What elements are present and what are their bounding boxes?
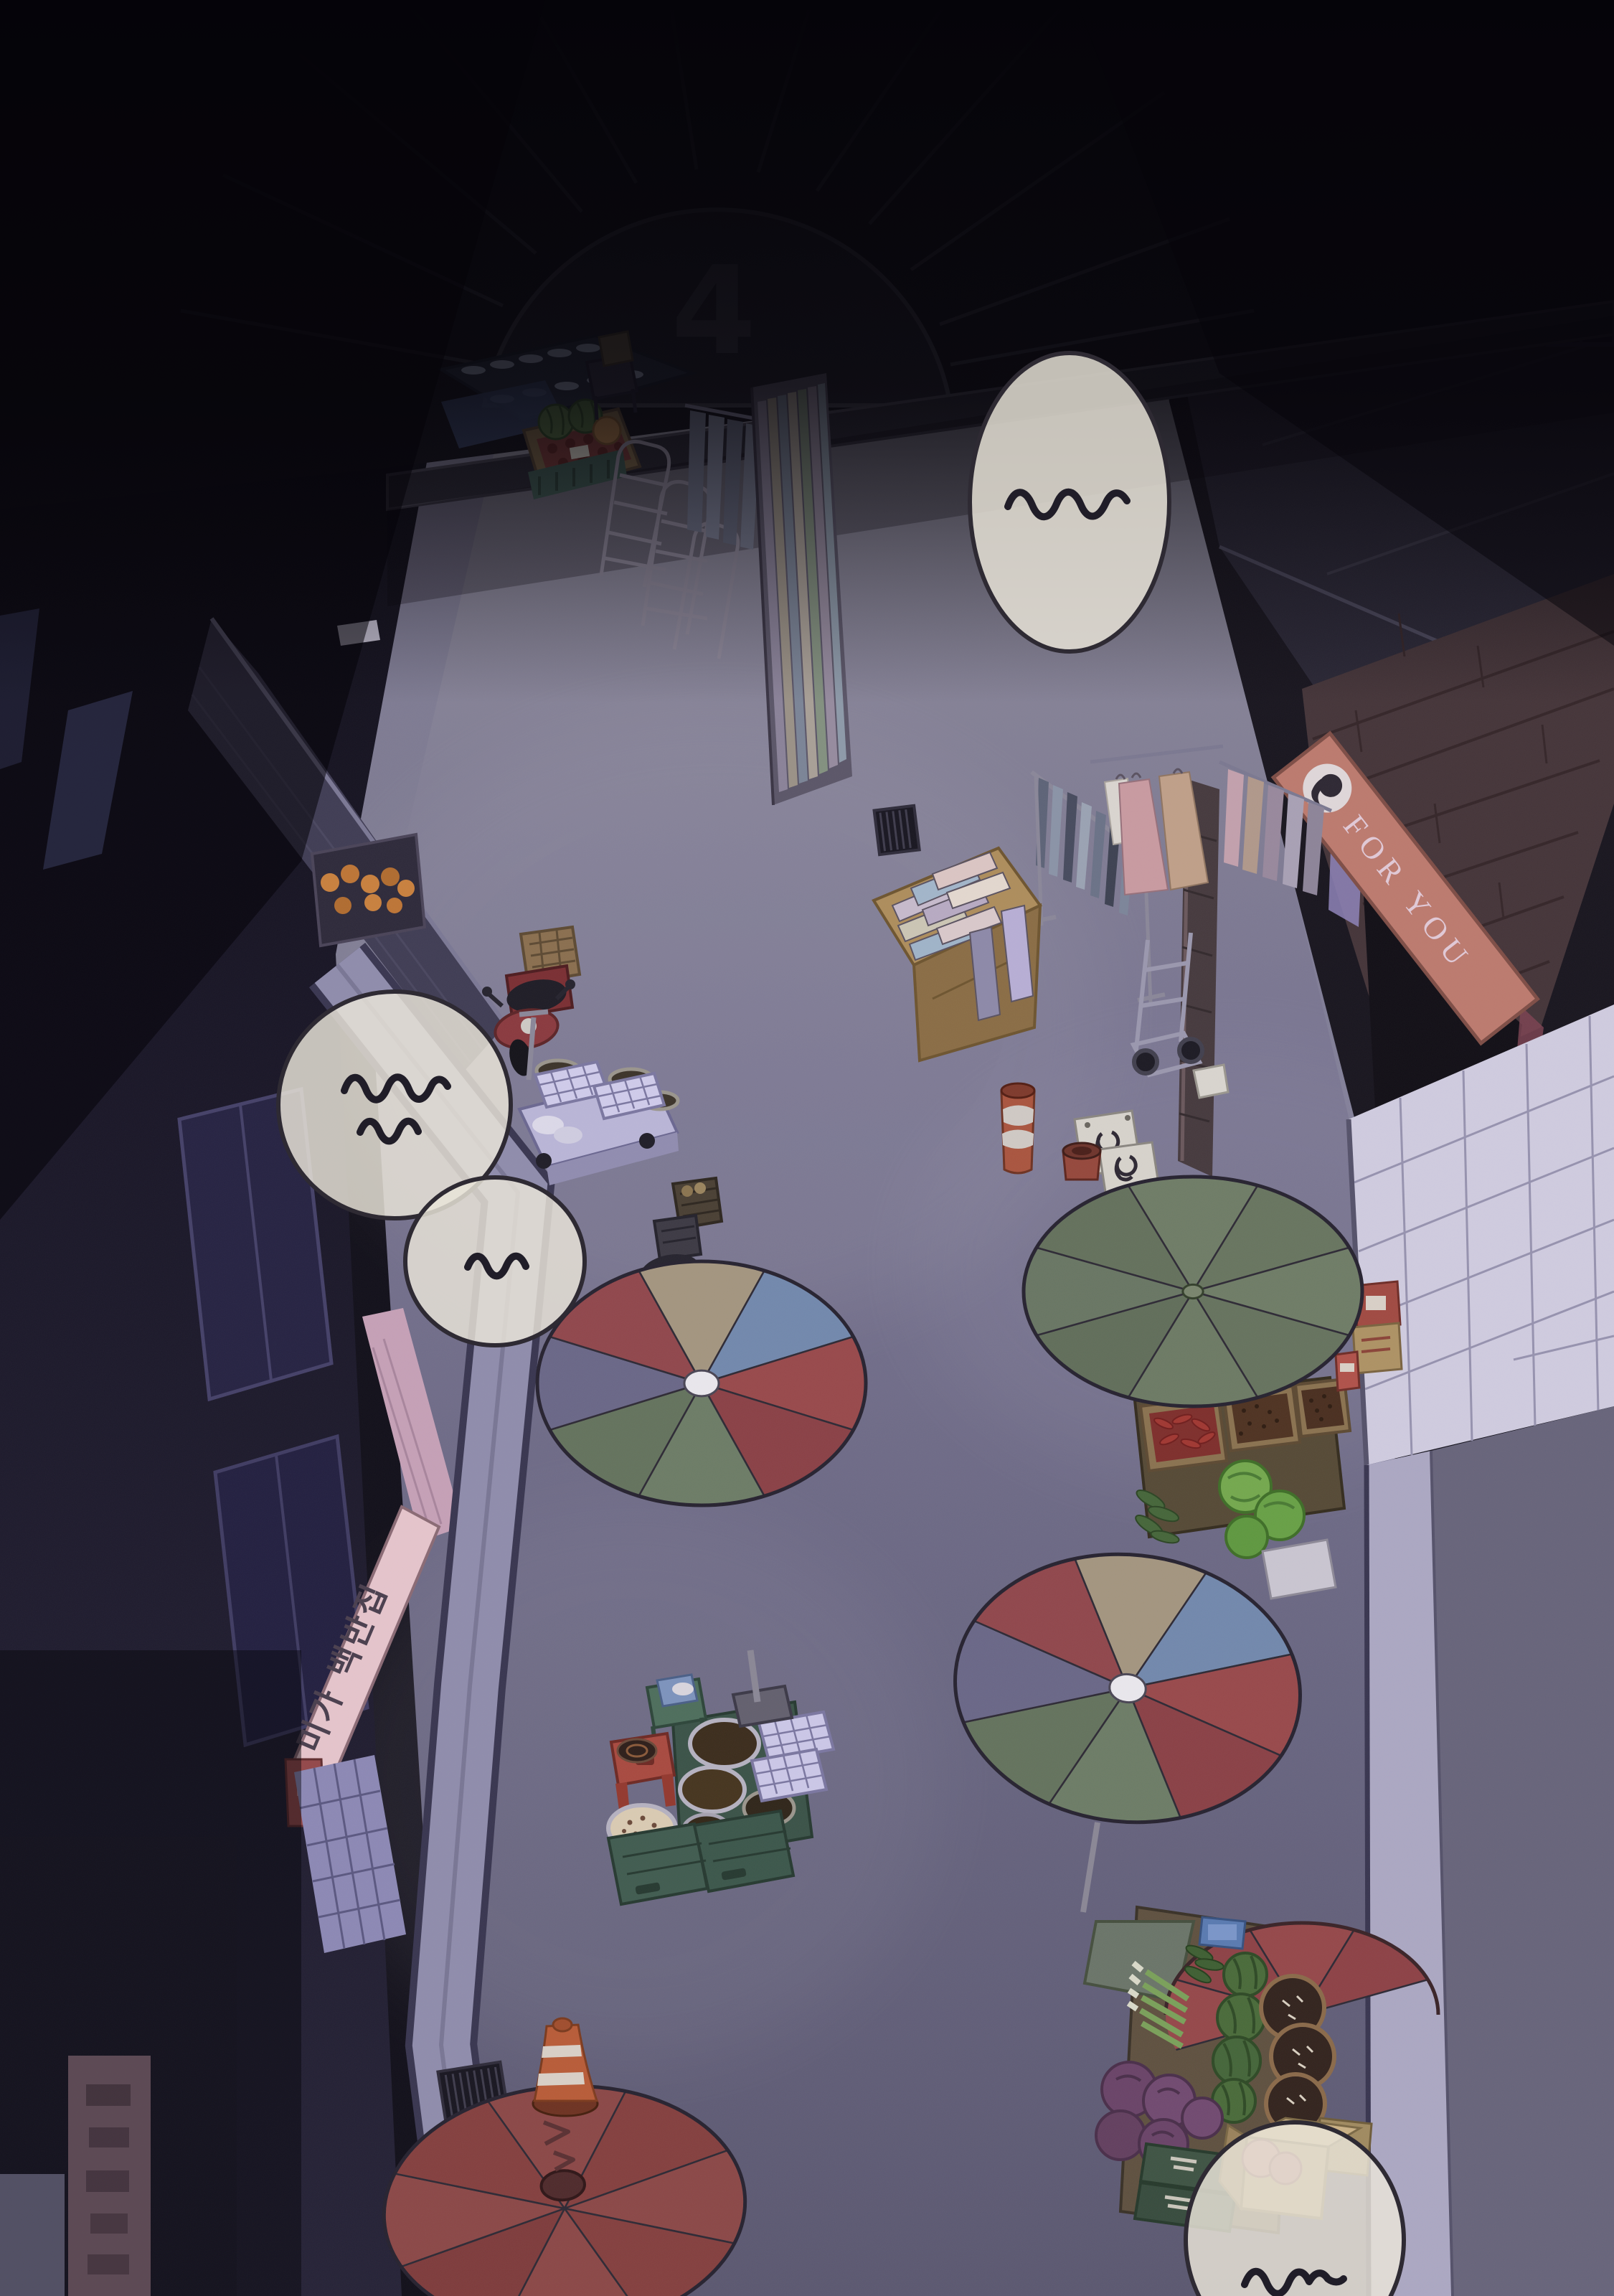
webtoon-panel: 미가 백반집	[0, 0, 1614, 2296]
snore-bubble-top-right	[970, 353, 1169, 651]
bottom-left-darkness	[0, 1650, 301, 2296]
snore-bubble-left-lower	[405, 1177, 585, 1345]
